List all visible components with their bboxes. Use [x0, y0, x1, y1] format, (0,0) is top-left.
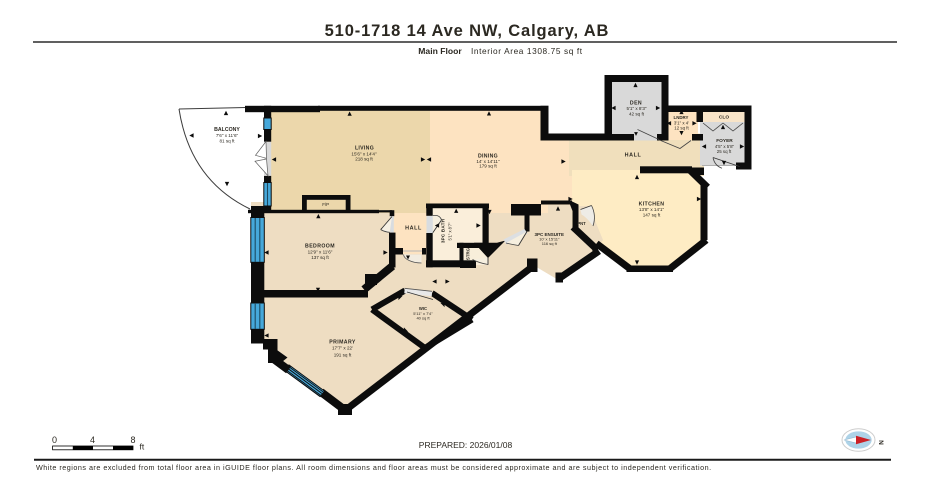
svg-text:13'8" x 14'1": 13'8" x 14'1"	[639, 207, 665, 212]
svg-text:8: 8	[130, 435, 135, 445]
svg-text:81 sq ft: 81 sq ft	[219, 139, 235, 144]
svg-text:N: N	[877, 440, 884, 445]
svg-text:Interior Area 1308.75 sq ft: Interior Area 1308.75 sq ft	[471, 46, 583, 56]
svg-text:White regions are excluded fro: White regions are excluded from total fl…	[36, 463, 712, 472]
svg-text:137 sq ft: 137 sq ft	[311, 255, 329, 260]
svg-text:CLO: CLO	[719, 114, 729, 120]
svg-text:STRG: STRG	[466, 247, 471, 260]
svg-text:0: 0	[52, 435, 57, 445]
svg-text:HALL: HALL	[405, 226, 422, 232]
svg-text:25 sq ft: 25 sq ft	[717, 149, 732, 154]
svg-text:218 sq ft: 218 sq ft	[355, 156, 373, 161]
svg-text:Main Floor: Main Floor	[418, 46, 462, 56]
svg-text:510-1718 14 Ave NW, Calgary, A: 510-1718 14 Ave NW, Calgary, AB	[325, 22, 610, 40]
svg-text:3'1" x 4': 3'1" x 4'	[674, 120, 689, 125]
svg-text:ft: ft	[140, 442, 145, 452]
svg-text:147 sq ft: 147 sq ft	[643, 213, 661, 218]
svg-text:17'7" x 22': 17'7" x 22'	[332, 346, 353, 351]
svg-text:PNT: PNT	[577, 221, 586, 226]
svg-text:12 sq ft: 12 sq ft	[674, 126, 689, 131]
svg-text:7'6" x 11'6": 7'6" x 11'6"	[216, 133, 239, 138]
svg-text:116 sq ft: 116 sq ft	[542, 241, 558, 246]
svg-text:HALL: HALL	[625, 153, 642, 159]
svg-text:179 sq ft: 179 sq ft	[479, 163, 497, 168]
svg-text:191 sq ft: 191 sq ft	[334, 352, 352, 357]
svg-text:42 sq ft: 42 sq ft	[629, 111, 645, 116]
svg-text:12'9" x 11'6": 12'9" x 11'6"	[308, 249, 333, 254]
svg-text:F/P: F/P	[322, 202, 329, 207]
svg-text:40 sq ft: 40 sq ft	[416, 315, 430, 320]
svg-text:4: 4	[90, 435, 95, 445]
svg-text:LNDRY: LNDRY	[674, 115, 689, 120]
svg-text:PREPARED: 2026/01/08: PREPARED: 2026/01/08	[419, 440, 513, 450]
svg-text:5'1" x 8'7": 5'1" x 8'7"	[448, 222, 453, 240]
svg-text:5'1" x 8'3": 5'1" x 8'3"	[626, 106, 646, 111]
svg-text:3PC BATH: 3PC BATH	[441, 218, 446, 243]
